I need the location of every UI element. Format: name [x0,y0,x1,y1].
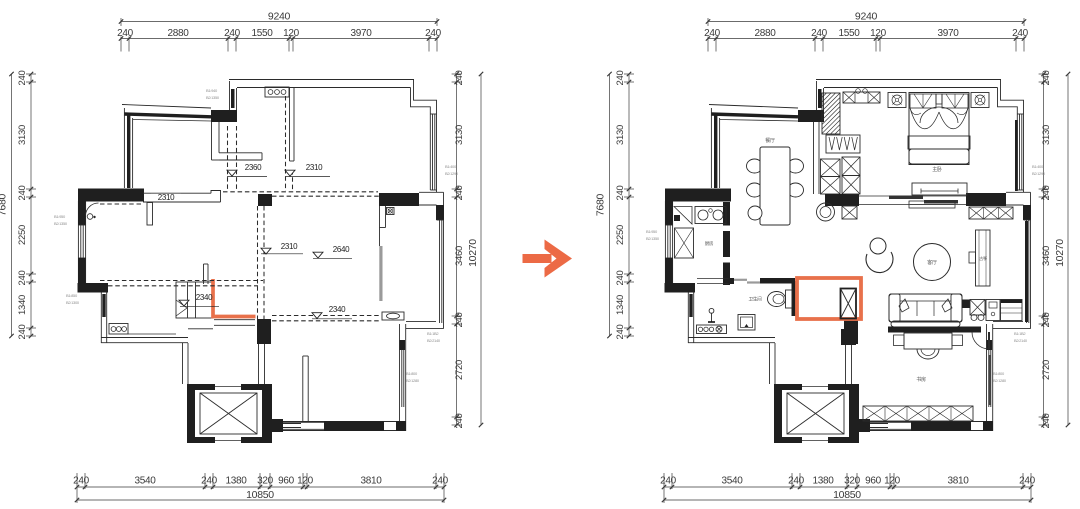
svg-text:960: 960 [865,476,882,487]
svg-text:1550: 1550 [838,28,860,39]
svg-text:B2:2140: B2:2140 [427,338,441,343]
svg-text:10850: 10850 [246,489,274,501]
svg-text:240: 240 [17,271,28,286]
svg-text:B1:1B2: B1:1B2 [427,331,439,336]
svg-text:2250: 2250 [17,225,28,245]
svg-text:古筝: 古筝 [979,255,987,262]
svg-text:240: 240 [73,476,90,487]
svg-text:B2:1290: B2:1290 [1032,171,1046,176]
svg-text:120: 120 [297,476,314,487]
svg-text:2340: 2340 [329,305,346,314]
svg-text:2880: 2880 [167,28,189,39]
svg-text:240: 240 [454,313,465,328]
svg-text:3460: 3460 [1041,246,1052,266]
svg-text:B1:800: B1:800 [993,371,1005,376]
svg-text:2310: 2310 [158,193,175,202]
svg-text:960: 960 [278,476,295,487]
svg-text:320: 320 [257,476,274,487]
svg-text:240: 240 [1041,313,1052,328]
svg-text:240: 240 [1019,476,1036,487]
svg-text:240: 240 [17,186,28,201]
svg-text:2640: 2640 [333,245,350,254]
svg-text:10270: 10270 [1054,239,1066,267]
svg-text:3130: 3130 [615,125,626,145]
svg-text:240: 240 [1012,28,1029,39]
svg-text:240: 240 [615,325,626,340]
svg-text:240: 240 [1041,186,1052,201]
svg-text:B1:940: B1:940 [206,88,218,93]
svg-text:1550: 1550 [251,28,273,39]
svg-text:10270: 10270 [467,239,479,267]
svg-text:书房: 书房 [916,376,926,383]
svg-text:3540: 3540 [134,476,156,487]
svg-text:240: 240 [615,271,626,286]
svg-text:B2:1350: B2:1350 [206,95,220,100]
svg-text:2310: 2310 [281,242,298,251]
svg-text:2340: 2340 [196,293,213,302]
svg-text:7680: 7680 [0,193,9,216]
svg-text:2310: 2310 [306,163,323,172]
svg-text:240: 240 [1041,71,1052,86]
svg-text:B2:1350: B2:1350 [646,236,660,241]
svg-text:9240: 9240 [268,11,291,23]
svg-text:320: 320 [844,476,861,487]
svg-text:B1:950: B1:950 [646,229,658,234]
svg-text:B2:1300: B2:1300 [66,300,80,305]
svg-text:120: 120 [870,28,887,39]
svg-text:3130: 3130 [17,125,28,145]
svg-text:B2:1280: B2:1280 [993,378,1007,383]
svg-text:240: 240 [615,186,626,201]
svg-text:240: 240 [1041,414,1052,429]
svg-text:240: 240 [454,186,465,201]
svg-text:B1:1B2: B1:1B2 [1014,331,1026,336]
svg-text:240: 240 [454,414,465,429]
svg-text:B2:1280: B2:1280 [406,378,420,383]
svg-text:B1:850: B1:850 [66,293,78,298]
svg-text:240: 240 [425,28,442,39]
svg-text:240: 240 [811,28,828,39]
svg-text:2360: 2360 [245,163,262,172]
svg-text:客厅: 客厅 [927,259,937,266]
svg-text:2720: 2720 [454,360,465,380]
svg-text:10850: 10850 [833,489,861,501]
svg-text:1340: 1340 [17,295,28,315]
svg-text:B2:2140: B2:2140 [1014,338,1028,343]
svg-text:240: 240 [788,476,805,487]
svg-text:B1:950: B1:950 [54,214,66,219]
svg-text:120: 120 [283,28,300,39]
svg-text:B1:400: B1:400 [1032,164,1044,169]
svg-text:B1:400: B1:400 [445,164,457,169]
svg-text:3810: 3810 [360,476,382,487]
svg-text:2720: 2720 [1041,360,1052,380]
svg-text:240: 240 [615,71,626,86]
svg-text:3460: 3460 [454,246,465,266]
svg-text:1340: 1340 [615,295,626,315]
svg-text:主卧: 主卧 [932,166,942,173]
svg-text:240: 240 [432,476,449,487]
svg-text:3540: 3540 [721,476,743,487]
svg-text:1380: 1380 [812,476,834,487]
svg-text:240: 240 [224,28,241,39]
svg-text:3130: 3130 [454,125,465,145]
svg-text:240: 240 [17,325,28,340]
svg-text:240: 240 [201,476,218,487]
svg-text:餐厅: 餐厅 [765,137,775,144]
svg-text:3970: 3970 [937,28,959,39]
svg-text:9240: 9240 [855,11,878,23]
svg-text:240: 240 [117,28,134,39]
svg-text:卫生间: 卫生间 [749,296,763,303]
svg-text:1380: 1380 [225,476,247,487]
svg-text:240: 240 [17,71,28,86]
svg-text:3970: 3970 [350,28,372,39]
svg-text:240: 240 [454,71,465,86]
svg-text:240: 240 [704,28,721,39]
svg-text:7680: 7680 [595,193,607,216]
svg-text:3810: 3810 [947,476,969,487]
svg-text:B2:1290: B2:1290 [445,171,459,176]
svg-text:3130: 3130 [1041,125,1052,145]
svg-text:B2:1350: B2:1350 [54,221,68,226]
svg-text:B1:800: B1:800 [406,371,418,376]
svg-text:2250: 2250 [615,225,626,245]
svg-text:2880: 2880 [754,28,776,39]
svg-text:240: 240 [660,476,677,487]
svg-text:120: 120 [884,476,901,487]
svg-text:厨房: 厨房 [705,240,714,247]
